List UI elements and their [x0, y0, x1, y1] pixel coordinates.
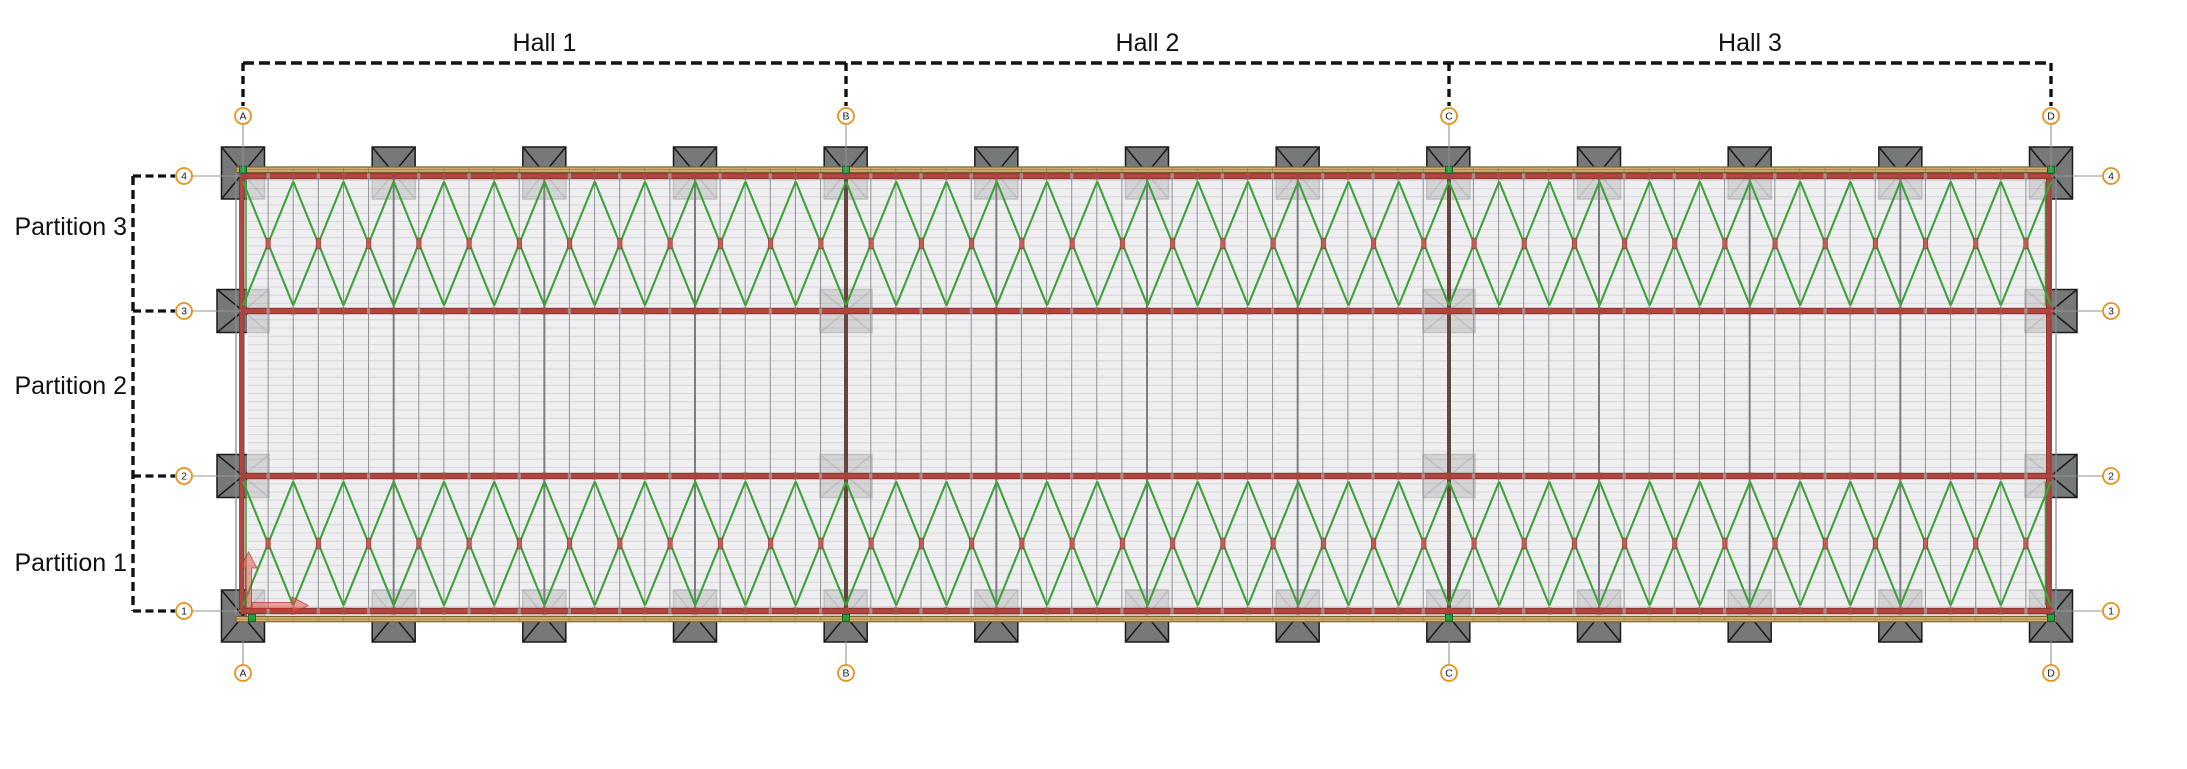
grid-bubble-A-top-label: A — [239, 111, 246, 123]
grid-bubble-B-bottom[interactable]: B — [838, 665, 854, 681]
grid-bubble-A-bottom[interactable]: A — [235, 665, 251, 681]
grid-bubble-3-left-label: 3 — [181, 306, 187, 318]
grid-bubble-C-bottom-label: C — [1445, 668, 1453, 680]
grid-bubble-4-right[interactable]: 4 — [2103, 168, 2119, 184]
grid-bubble-B-top-label: B — [842, 111, 849, 123]
gable-beam-D[interactable] — [2046, 176, 2051, 612]
grid-bubble-3-right-label: 3 — [2108, 306, 2114, 318]
grid-bubble-C-top[interactable]: C — [1441, 108, 1457, 124]
grid-bubble-A-bottom-label: A — [239, 668, 246, 680]
eave-beam-top[interactable] — [236, 167, 2056, 172]
grid-bubble-3-right[interactable]: 3 — [2103, 303, 2119, 319]
hall-label-2: Hall 2 — [1116, 29, 1180, 57]
grid-bubble-C-top-label: C — [1445, 111, 1453, 123]
grid-bubble-2-right[interactable]: 2 — [2103, 468, 2119, 484]
structural-plan-drawing: Hall 1Hall 2Hall 3Partition 3Partition 2… — [0, 0, 2187, 769]
partition-label-1: Partition 1 — [14, 549, 127, 577]
grid-bubble-B-bottom-label: B — [842, 668, 849, 680]
hall-label-3: Hall 3 — [1718, 29, 1782, 57]
hall-dimension-line: Hall 1Hall 2Hall 3 — [243, 29, 2051, 106]
partition-boundary-line: Partition 3Partition 2Partition 1 — [14, 176, 175, 611]
grid-bubble-1-left[interactable]: 1 — [176, 603, 192, 619]
grid-bubble-4-left[interactable]: 4 — [176, 168, 192, 184]
grid-bubble-4-left-label: 4 — [181, 171, 187, 183]
grid-bubble-D-bottom-label: D — [2047, 668, 2055, 680]
hall-label-1: Hall 1 — [513, 29, 577, 57]
partition-label-2: Partition 2 — [14, 372, 127, 400]
partition-label-3: Partition 3 — [14, 213, 127, 241]
grid-bubble-1-right-label: 1 — [2108, 606, 2114, 618]
grid-bubble-D-top-label: D — [2047, 111, 2055, 123]
grid-bubble-D-bottom[interactable]: D — [2043, 665, 2059, 681]
grid-bubble-2-left-label: 2 — [181, 471, 187, 483]
grid-bubble-2-left[interactable]: 2 — [176, 468, 192, 484]
grid-bubble-1-right[interactable]: 1 — [2103, 603, 2119, 619]
grid-bubble-3-left[interactable]: 3 — [176, 303, 192, 319]
grid-bubble-4-right-label: 4 — [2108, 171, 2114, 183]
grid-bubble-B-top[interactable]: B — [838, 108, 854, 124]
grid-bubble-D-top[interactable]: D — [2043, 108, 2059, 124]
grid-bubble-2-right-label: 2 — [2108, 471, 2114, 483]
gable-beam-A[interactable] — [240, 176, 245, 612]
eave-beam-bottom[interactable] — [236, 616, 2056, 621]
grid-bubble-A-top[interactable]: A — [235, 108, 251, 124]
cad-viewport: Hall 1Hall 2Hall 3Partition 3Partition 2… — [0, 0, 2187, 769]
grid-bubble-1-left-label: 1 — [181, 606, 187, 618]
grid-bubble-C-bottom[interactable]: C — [1441, 665, 1457, 681]
